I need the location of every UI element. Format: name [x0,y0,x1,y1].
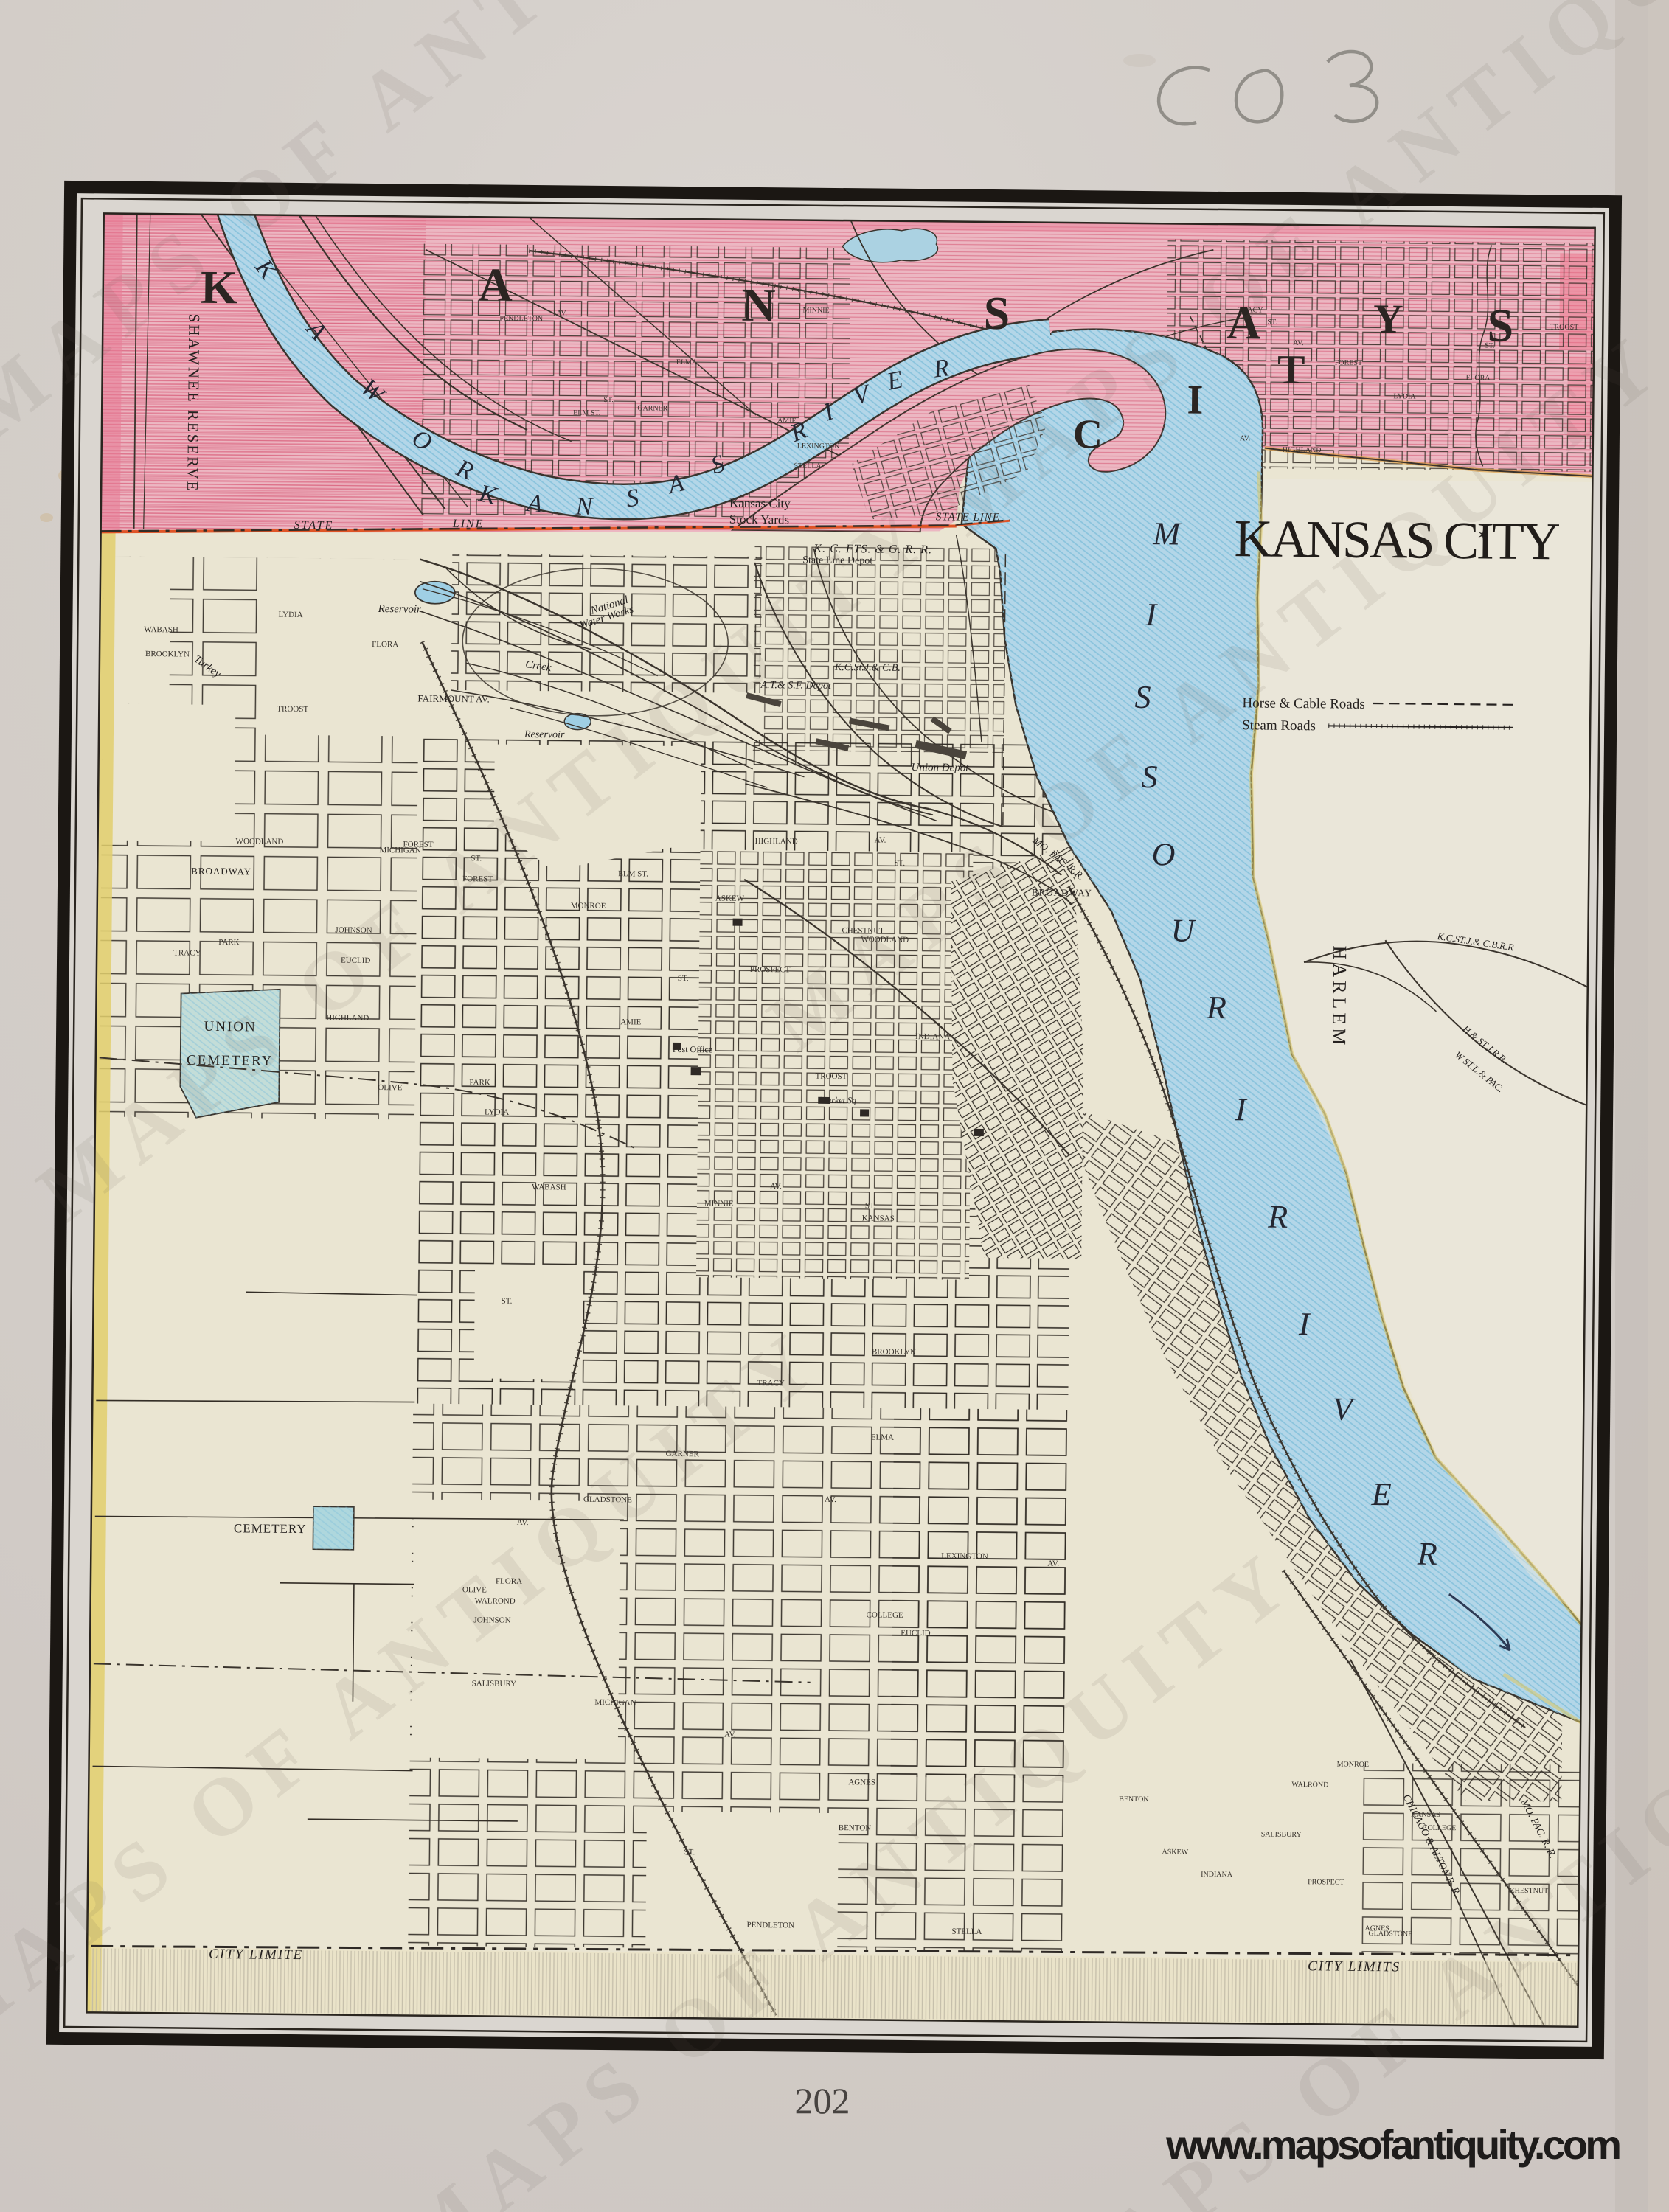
svg-text:GARNER: GARNER [637,404,668,412]
svg-text:R: R [1206,990,1226,1026]
svg-text:AV.: AV. [556,309,566,317]
svg-text:STELLA: STELLA [951,1927,982,1936]
svg-text:AV.: AV. [1240,434,1250,442]
svg-text:COLLEGE: COLLEGE [866,1610,903,1619]
svg-text:Kansas City: Kansas City [729,496,791,511]
svg-text:MICHIGAN: MICHIGAN [594,1698,636,1708]
svg-text:PROSPECT: PROSPECT [1308,1878,1344,1886]
svg-text:HARLEM: HARLEM [1328,945,1350,1048]
svg-text:AMIE: AMIE [620,1018,642,1026]
svg-text:TROOST: TROOST [277,705,308,714]
svg-text:GLADSTONE: GLADSTONE [1368,1930,1412,1938]
svg-text:HIGHLAND: HIGHLAND [1283,446,1322,455]
svg-text:PENDLETON: PENDLETON [499,315,543,324]
svg-text:EUCLID: EUCLID [901,1629,930,1638]
svg-text:SALISBURY: SALISBURY [472,1679,517,1688]
svg-text:FOREST: FOREST [1335,358,1362,366]
svg-text:LYDIA: LYDIA [485,1107,509,1116]
svg-text:PARK: PARK [218,938,240,947]
svg-text:I: I [1145,597,1158,633]
svg-text:PARK: PARK [469,1078,490,1087]
svg-text:ELM ST.: ELM ST. [618,869,648,878]
svg-text:ST.: ST. [865,1201,876,1210]
svg-text:AV.: AV. [1293,339,1303,347]
svg-text:I: I [1235,1091,1248,1127]
svg-text:MINNIE: MINNIE [704,1199,734,1208]
svg-text:KANSAS: KANSAS [862,1214,895,1222]
svg-text:ST.: ST. [603,396,614,404]
svg-text:MONROE: MONROE [571,902,606,911]
svg-text:BENTON: BENTON [839,1823,872,1832]
svg-text:MINNIE: MINNIE [802,307,829,315]
svg-text:AV.: AV. [875,836,886,845]
svg-text:S: S [1487,299,1513,351]
svg-text:WALROND: WALROND [1291,1781,1328,1789]
svg-text:KANSAS: KANSAS [1411,1811,1440,1819]
svg-text:ELMA: ELMA [676,358,698,366]
svg-text:ST.: ST. [684,1848,695,1857]
svg-text:ELM ST.: ELM ST. [573,409,600,417]
svg-text:LYDIA: LYDIA [1393,392,1416,400]
svg-text:HIGHLAND: HIGHLAND [755,837,798,846]
svg-text:TROOST: TROOST [816,1072,847,1081]
svg-text:CEMETERY: CEMETERY [234,1521,307,1536]
svg-text:TROOST: TROOST [1550,323,1578,331]
svg-text:AV.: AV. [770,1182,782,1191]
svg-text:LINE: LINE [452,518,485,530]
svg-text:ST.: ST. [678,974,689,983]
svg-text:MICHIGAN: MICHIGAN [379,846,420,855]
svg-text:A: A [478,258,513,310]
svg-text:LEXINGTON: LEXINGTON [941,1551,988,1561]
svg-text:WABASH: WABASH [532,1183,566,1192]
svg-text:MONROE: MONROE [1337,1761,1369,1769]
svg-text:R: R [1417,1536,1437,1572]
svg-text:STATE: STATE [294,519,334,532]
svg-text:K.C.St.J.& C.B.: K.C.St.J.& C.B. [834,662,901,674]
svg-text:FLORA: FLORA [372,640,398,649]
svg-text:SHAWNEE RESERVE: SHAWNEE RESERVE [184,314,203,493]
svg-text:202: 202 [795,2080,850,2121]
svg-text:AV.: AV. [1047,1559,1059,1568]
svg-text:AV.: AV. [825,1495,836,1504]
svg-text:AV.: AV. [724,1731,736,1739]
svg-text:STELLA: STELLA [794,462,822,470]
svg-text:U: U [1170,912,1196,948]
svg-text:R: R [1267,1199,1288,1235]
svg-text:ASKEW: ASKEW [715,894,745,902]
svg-text:Stock Yards: Stock Yards [729,512,789,527]
svg-text:T: T [1277,347,1305,393]
svg-text:SALISBURY: SALISBURY [1261,1831,1302,1840]
svg-text:O: O [1151,836,1175,872]
svg-text:ASKEW: ASKEW [1162,1848,1188,1856]
svg-text:FLORA: FLORA [1466,374,1491,382]
svg-text:OLIVE: OLIVE [378,1083,402,1092]
svg-text:Y: Y [1373,296,1403,342]
svg-text:E: E [1370,1476,1391,1512]
svg-text:AGNES: AGNES [848,1778,875,1787]
svg-text:BROADWAY: BROADWAY [191,866,251,877]
svg-text:I: I [1298,1306,1311,1342]
svg-text:INDIANA: INDIANA [915,1032,950,1041]
svg-text:ST.: ST. [894,859,905,868]
svg-text:BENTON: BENTON [1119,1795,1148,1804]
svg-text:WOODLAND: WOODLAND [236,837,284,846]
svg-text:Reservoir: Reservoir [524,729,565,741]
svg-text:Reservoir: Reservoir [378,603,422,616]
svg-text:FAIRMOUNT AV.: FAIRMOUNT AV. [417,693,489,705]
svg-text:N: N [575,493,594,521]
svg-text:N: N [741,279,776,331]
svg-text:ST.: ST. [502,1297,513,1306]
svg-text:WABASH: WABASH [144,625,178,634]
svg-text:BROOKLYN: BROOKLYN [872,1348,916,1357]
svg-text:BROOKLYN: BROOKLYN [145,650,190,659]
svg-text:ELMA: ELMA [871,1433,894,1441]
svg-text:Union Depot: Union Depot [912,762,970,774]
svg-text:M: M [1152,515,1182,552]
svg-text:S: S [983,287,1010,339]
svg-text:LYDIA: LYDIA [278,611,302,619]
svg-text:CITY LIMITS: CITY LIMITS [1308,1958,1401,1975]
svg-text:COLLEGE: COLLEGE [1423,1824,1457,1832]
svg-text:INDIANA: INDIANA [1201,1871,1233,1879]
svg-text:CITY LIMITE: CITY LIMITE [209,1947,303,1963]
svg-text:TRACY: TRACY [173,948,201,957]
svg-text:www.mapsofantiquity.com: www.mapsofantiquity.com [1165,2121,1622,2168]
svg-text:BROADWAY: BROADWAY [1032,887,1092,899]
